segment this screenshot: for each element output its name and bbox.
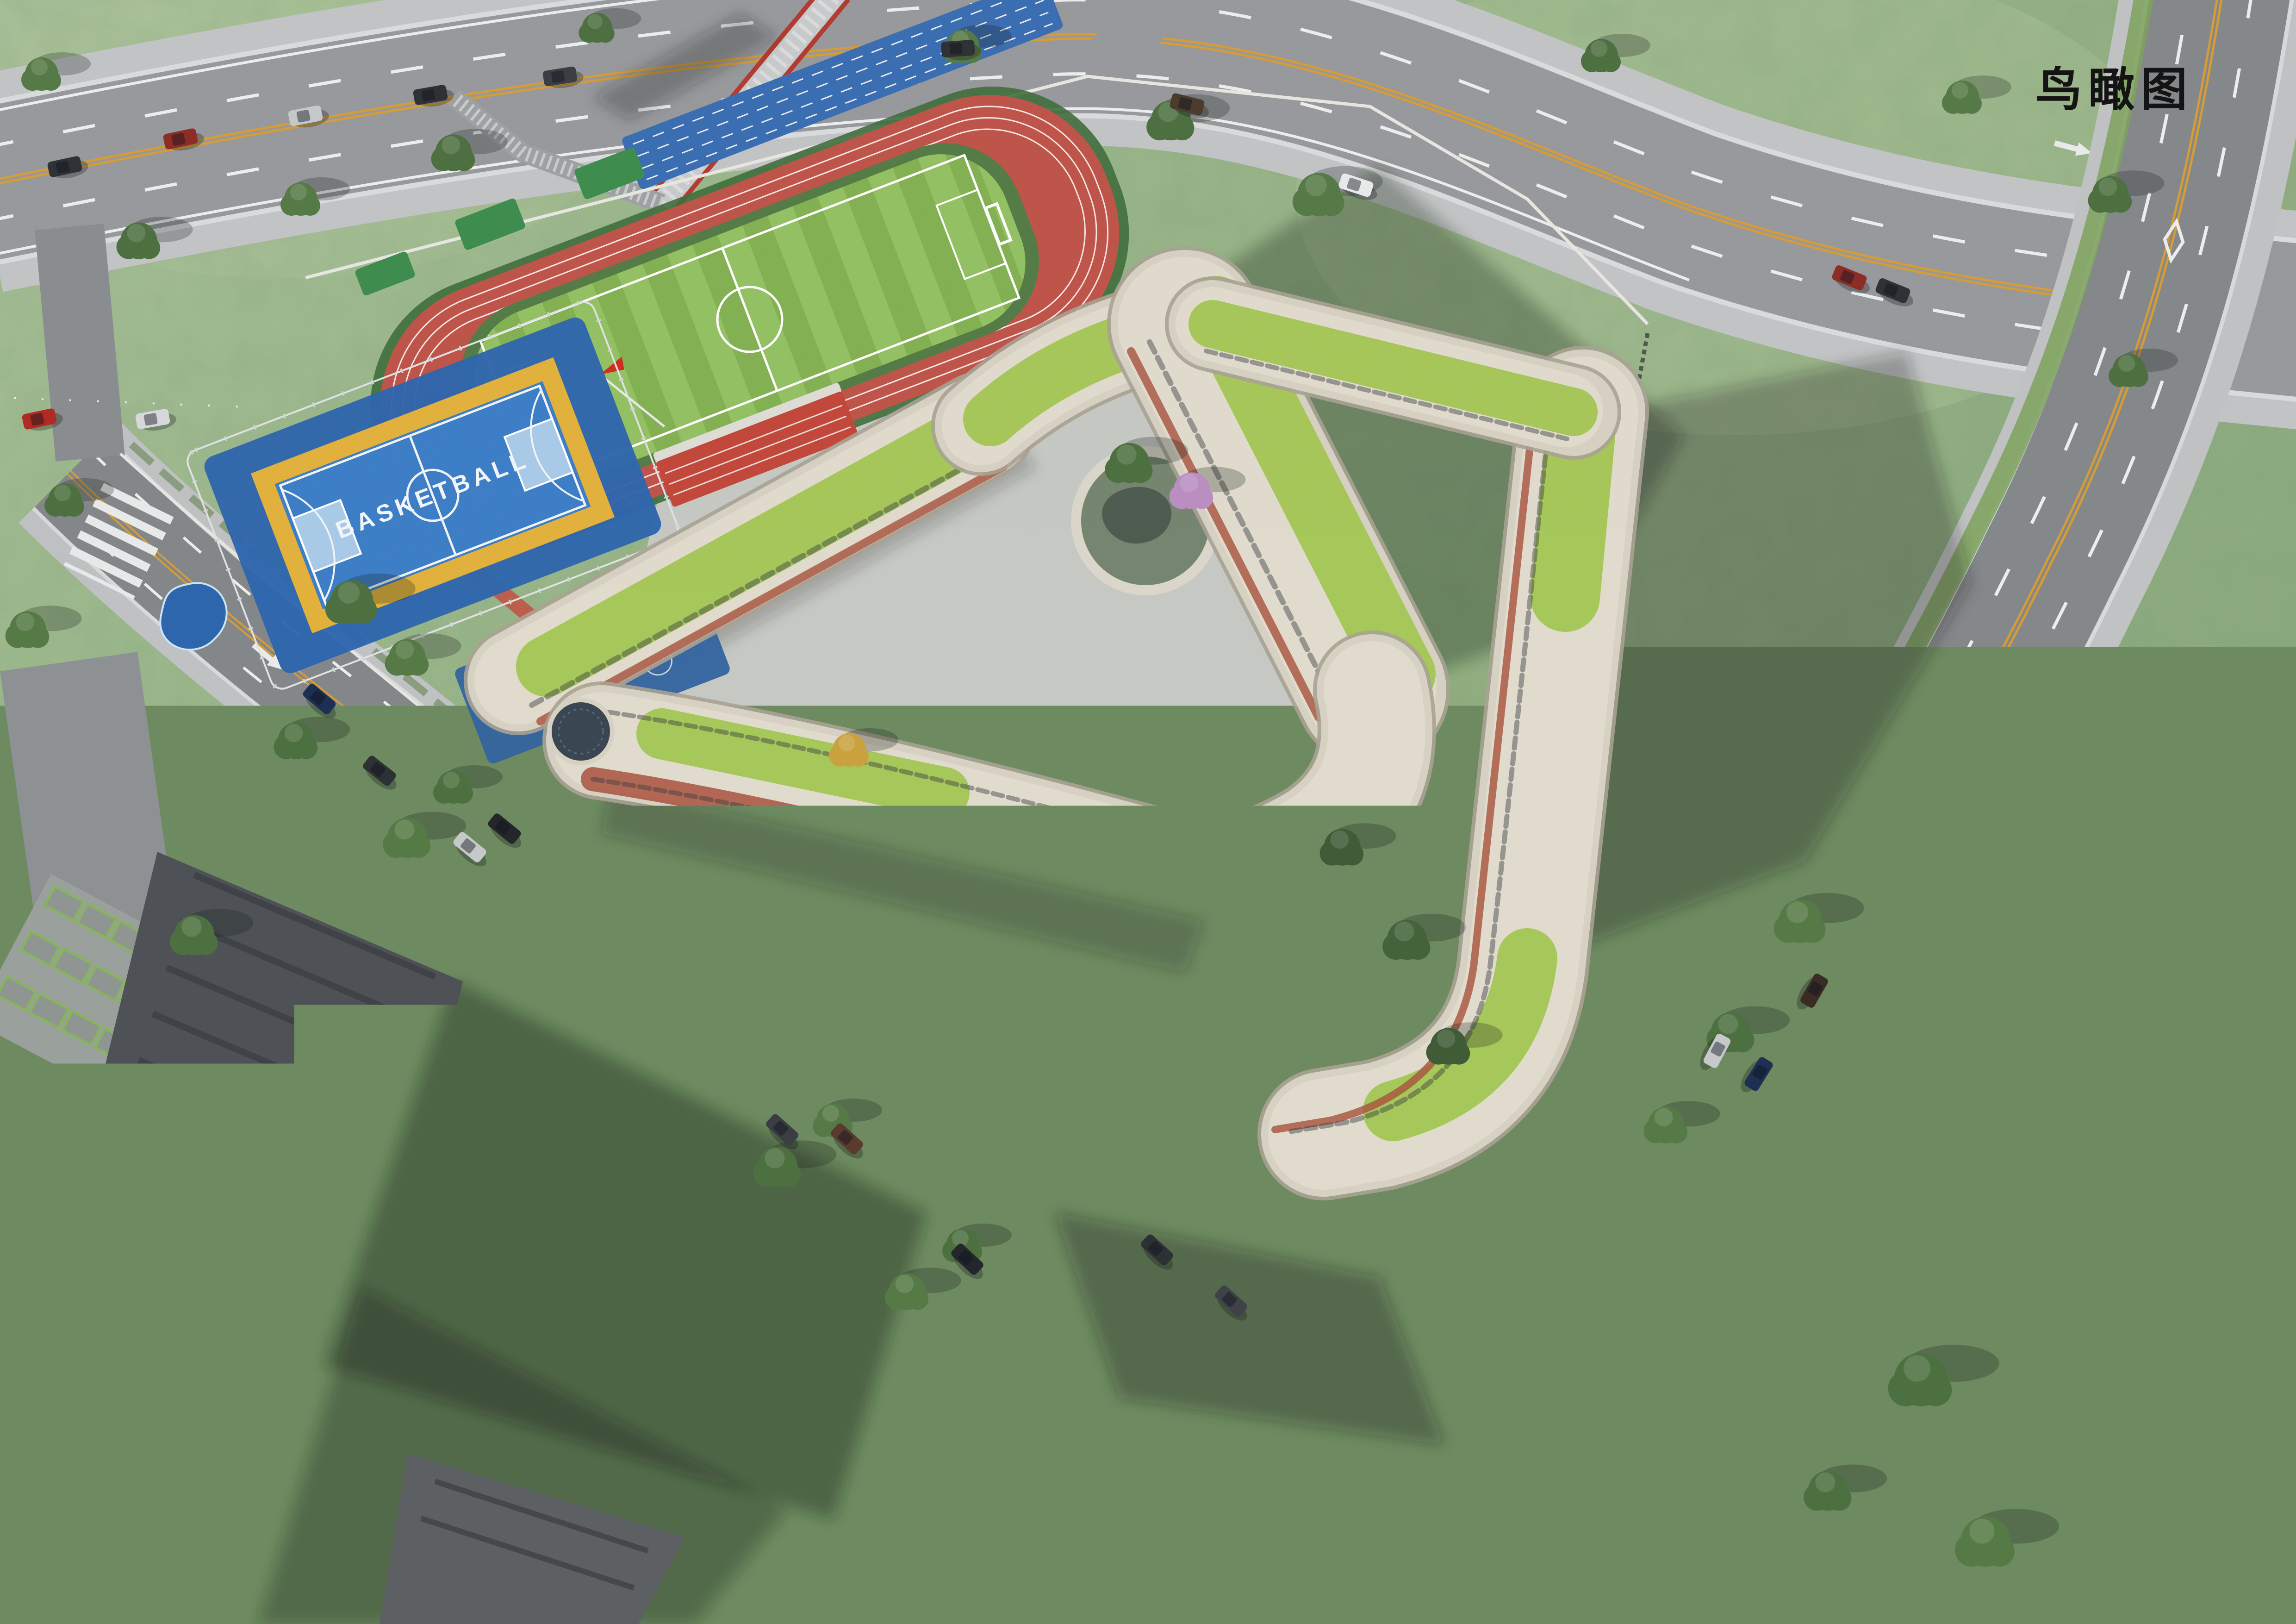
aerial-render: BASKETBALL [0, 0, 2296, 1624]
view-title: 鸟瞰图 [2035, 52, 2194, 119]
scene-canvas: BASKETBALL [0, 0, 2296, 1624]
grain-overlay [0, 0, 2296, 1624]
